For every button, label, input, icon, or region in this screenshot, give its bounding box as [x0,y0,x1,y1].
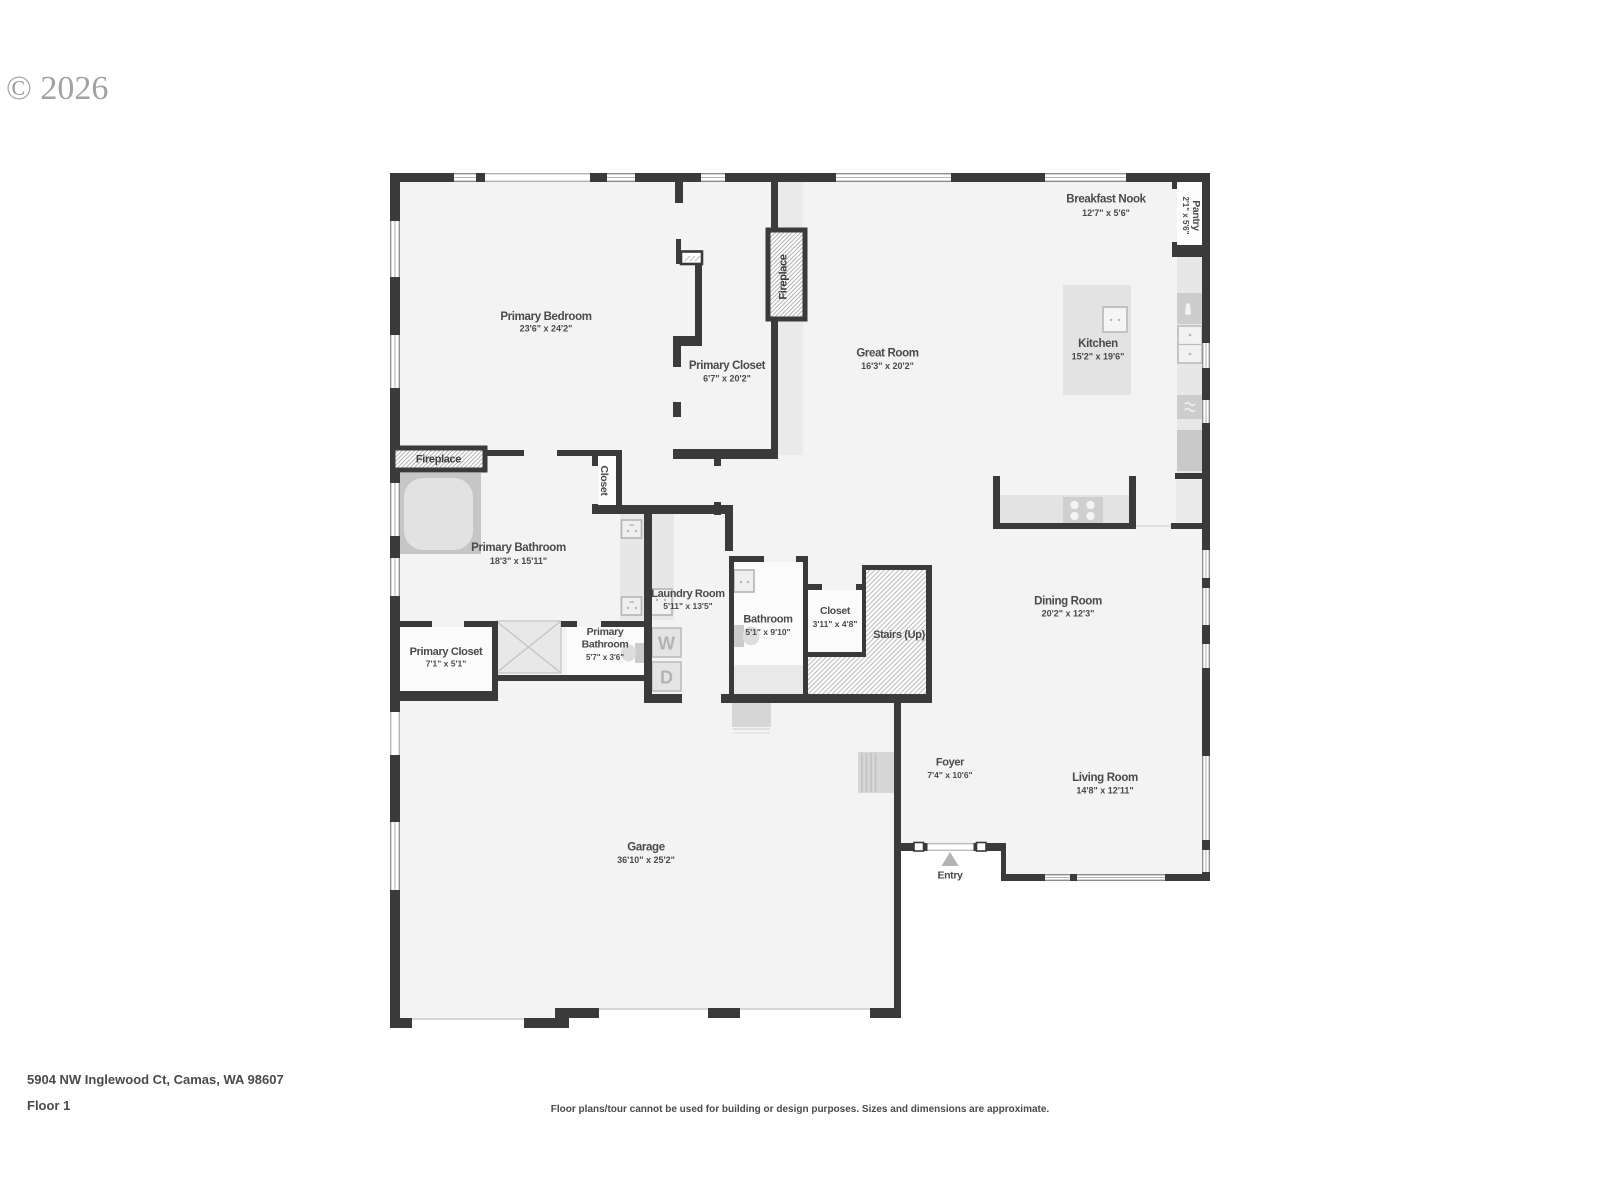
svg-text:W: W [658,634,675,654]
svg-text:Bathroom: Bathroom [582,639,629,651]
svg-text:Closet: Closet [820,605,851,617]
svg-text:5904 NW Inglewood Ct, Camas, W: 5904 NW Inglewood Ct, Camas, WA 98607 [27,1072,284,1087]
svg-text:18'3" x 15'11": 18'3" x 15'11" [490,556,547,566]
svg-text:Laundry Room: Laundry Room [651,588,725,600]
svg-text:D: D [660,668,673,688]
svg-text:Entry: Entry [937,870,963,882]
svg-text:Floor 1: Floor 1 [27,1098,70,1113]
svg-text:Foyer: Foyer [936,757,965,769]
svg-text:7'4" x 10'6": 7'4" x 10'6" [927,770,972,780]
svg-text:Floor plans/tour cannot be use: Floor plans/tour cannot be used for buil… [551,1104,1050,1115]
svg-text:Closet: Closet [598,466,610,497]
svg-text:36'10" x 25'2": 36'10" x 25'2" [617,855,675,865]
svg-text:Primary Bathroom: Primary Bathroom [471,542,566,554]
svg-text:2'1" x 5'6": 2'1" x 5'6" [1181,196,1190,234]
svg-text:3'11" x 4'8": 3'11" x 4'8" [813,619,858,629]
svg-text:© 2026: © 2026 [6,70,108,107]
svg-text:Fireplace: Fireplace [416,454,461,466]
svg-text:23'6" x 24'2": 23'6" x 24'2" [520,324,573,334]
svg-text:5'11" x 13'5": 5'11" x 13'5" [663,601,712,611]
svg-text:Primary: Primary [587,626,624,638]
svg-text:Great Room: Great Room [856,348,918,360]
svg-text:12'7" x 5'6": 12'7" x 5'6" [1082,208,1130,218]
svg-text:5'7" x 3'6": 5'7" x 3'6" [586,653,624,662]
svg-text:Breakfast Nook: Breakfast Nook [1066,194,1146,206]
svg-text:Pantry: Pantry [1190,200,1202,231]
svg-text:Bathroom: Bathroom [743,614,793,626]
svg-text:Kitchen: Kitchen [1078,338,1118,350]
svg-text:6'7" x 20'2": 6'7" x 20'2" [703,374,751,384]
svg-text:15'2" x 19'6": 15'2" x 19'6" [1072,352,1125,362]
svg-text:Primary Closet: Primary Closet [689,360,766,372]
svg-text:Dining Room: Dining Room [1034,596,1102,608]
svg-text:14'8" x 12'11": 14'8" x 12'11" [1076,786,1133,796]
svg-text:Fireplace: Fireplace [778,254,790,299]
svg-text:7'1" x 5'1": 7'1" x 5'1" [426,659,466,669]
svg-text:Stairs (Up): Stairs (Up) [873,629,925,641]
svg-text:Living Room: Living Room [1072,772,1138,784]
svg-text:5'1" x 9'10": 5'1" x 9'10" [745,627,790,637]
svg-text:16'3" x 20'2": 16'3" x 20'2" [861,361,914,371]
svg-text:20'2" x 12'3": 20'2" x 12'3" [1042,609,1095,619]
svg-text:Garage: Garage [627,842,665,854]
svg-text:Primary Closet: Primary Closet [410,646,483,658]
svg-text:Primary Bedroom: Primary Bedroom [500,311,591,323]
